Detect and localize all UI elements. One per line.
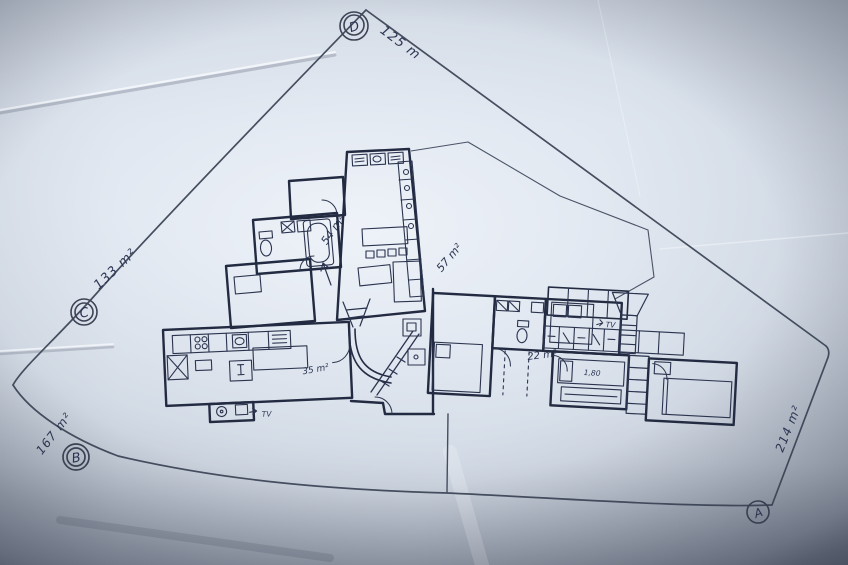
- tv-annotation-left: TV: [262, 409, 273, 418]
- tv-arrow-right: [597, 320, 603, 326]
- marker-b: B: [63, 444, 89, 470]
- kitchen-counter: [352, 152, 424, 297]
- marker-c: C: [71, 299, 97, 325]
- tv-annotation-right: TV: [605, 320, 616, 330]
- parcel-division-line: [447, 414, 448, 492]
- measure-right-edge: 214 m²: [773, 403, 804, 454]
- plan-drawing: D 125 m C 133 m² B 167 m² A 214 m²: [0, 0, 848, 565]
- measure-top-edge: 125 m: [377, 23, 423, 63]
- left-wing-door: [332, 344, 351, 363]
- open-terrace-label: 57 m²: [434, 241, 465, 275]
- bottom-right-room-walls: [646, 358, 737, 425]
- toilet-bowl-2: [517, 328, 528, 343]
- central-hall-label: 35 m²: [302, 363, 330, 378]
- direction-arrow: [321, 263, 331, 285]
- bed-left: [432, 342, 482, 392]
- paper-edges: [0, 0, 848, 565]
- boundary-right-edge: [772, 346, 829, 505]
- floor-plan-photo: D 125 m C 133 m² B 167 m² A 214 m²: [0, 0, 848, 565]
- measure-left-edge: 133 m²: [91, 246, 140, 293]
- desk: [234, 275, 261, 294]
- boundary-bottom-edge: [13, 385, 772, 506]
- toilet-bowl: [260, 240, 272, 257]
- upper-bath-fixtures: [234, 219, 334, 294]
- open-terrace-outline: [411, 142, 654, 299]
- right-wing: TV 1,80 22 m²: [427, 281, 740, 425]
- toilet-tank: [259, 231, 273, 239]
- room-area-labels: 54 m² 57 m² 35 m²: [302, 212, 466, 377]
- marker-c-letter: C: [78, 305, 91, 322]
- marker-a-letter: A: [751, 505, 764, 521]
- right-wing-furniture: [431, 296, 735, 418]
- upper-main-room-walls: [337, 149, 425, 320]
- hall-bottom-wall: [351, 401, 434, 414]
- marker-a: A: [747, 501, 769, 523]
- marker-b-letter: B: [71, 450, 82, 466]
- boundary-top-right-edge: [366, 10, 826, 346]
- upper-furniture: [358, 227, 421, 302]
- bed-right: [662, 378, 732, 418]
- hall-stair-diagonal: [371, 331, 419, 395]
- curved-corridor-wall: [349, 329, 391, 383]
- bed-width-label: 1,80: [584, 368, 601, 378]
- marker-d: D: [340, 12, 368, 40]
- toilet-tank-2: [517, 320, 528, 327]
